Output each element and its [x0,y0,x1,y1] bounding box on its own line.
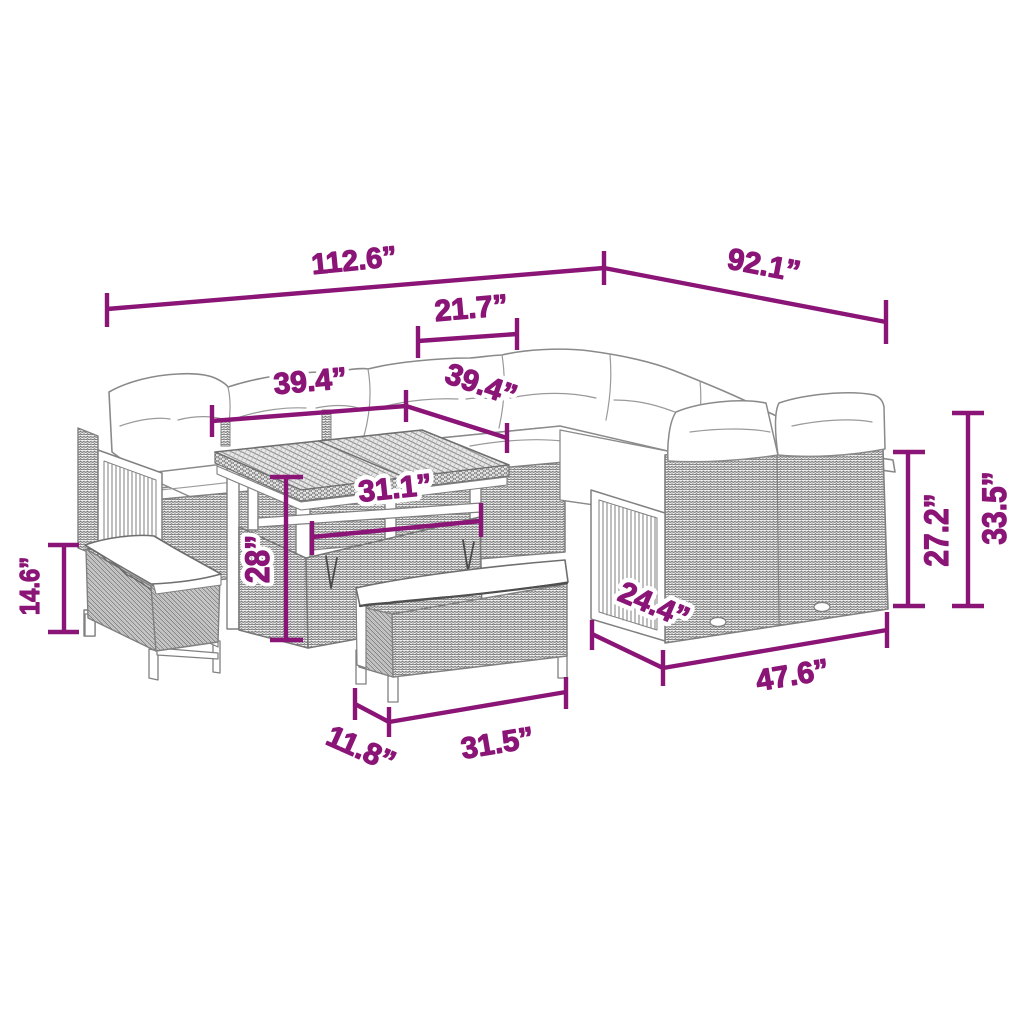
svg-text:28”: 28” [238,535,276,583]
svg-text:27.2”: 27.2” [917,493,955,566]
svg-text:21.7”: 21.7” [433,289,509,328]
svg-text:14.6”: 14.6” [13,557,45,615]
svg-text:33.5”: 33.5” [975,471,1013,544]
svg-text:39.4”: 39.4” [272,362,348,401]
